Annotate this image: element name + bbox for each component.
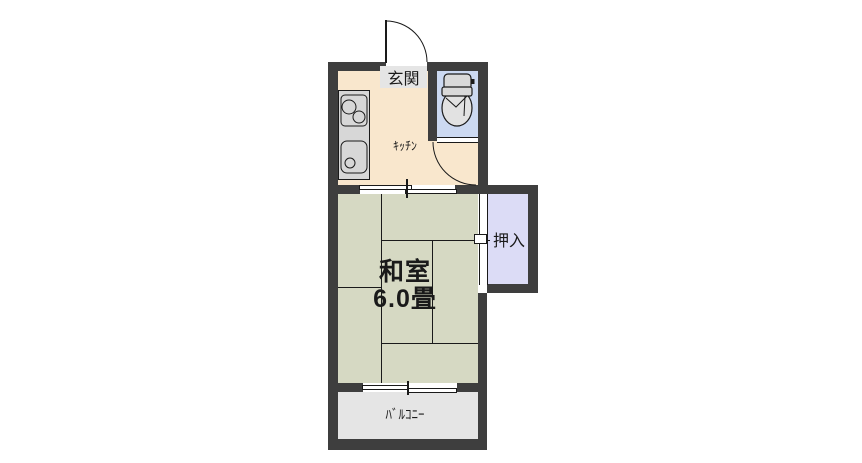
balcony-sliding-window-panel [407,388,457,393]
oshiire-label: 押入 [489,230,529,248]
sink-drain-icon [345,158,355,168]
floor-plan: 玄関 ｷｯﾁﾝ 押入 和室 6.0畳 ﾊﾞﾙｺﾆｰ [0,0,862,463]
balcony-label: ﾊﾞﾙｺﾆｰ [360,405,450,421]
fusuma-meeting-mark [474,234,487,244]
stove-and-sink-icon [338,90,370,180]
burner-icon [342,100,356,114]
wall [457,383,478,392]
toilet-door [437,137,478,143]
balcony-sliding-window-panel [362,385,409,390]
wall [328,62,338,450]
wall [338,383,363,392]
sliding-window-center-mark [407,381,409,395]
kitchen-label: ｷｯﾁﾝ [370,138,440,152]
tatami-joint-line [381,343,478,344]
entry-door-arc [386,21,427,62]
burner-icon [353,111,365,123]
toilet-partition-wall [428,62,437,141]
wall [338,185,360,194]
kitchen-washitsu-sliding-door-panel [405,189,457,194]
sliding-door-center-mark [406,179,408,198]
wall [328,62,386,71]
toilet-icon [437,71,478,137]
washitsu-label: 和室 6.0畳 [340,256,470,316]
wall [528,185,538,293]
washitsu-room-name: 和室 [379,259,431,286]
wall [478,293,487,450]
washitsu-room-size: 6.0畳 [373,286,437,313]
genkan-label: 玄関 [380,66,427,88]
sink-icon [341,141,367,173]
toilet-seat-icon [442,87,472,96]
wall [478,62,488,194]
wall [328,439,487,450]
wall [487,284,538,293]
